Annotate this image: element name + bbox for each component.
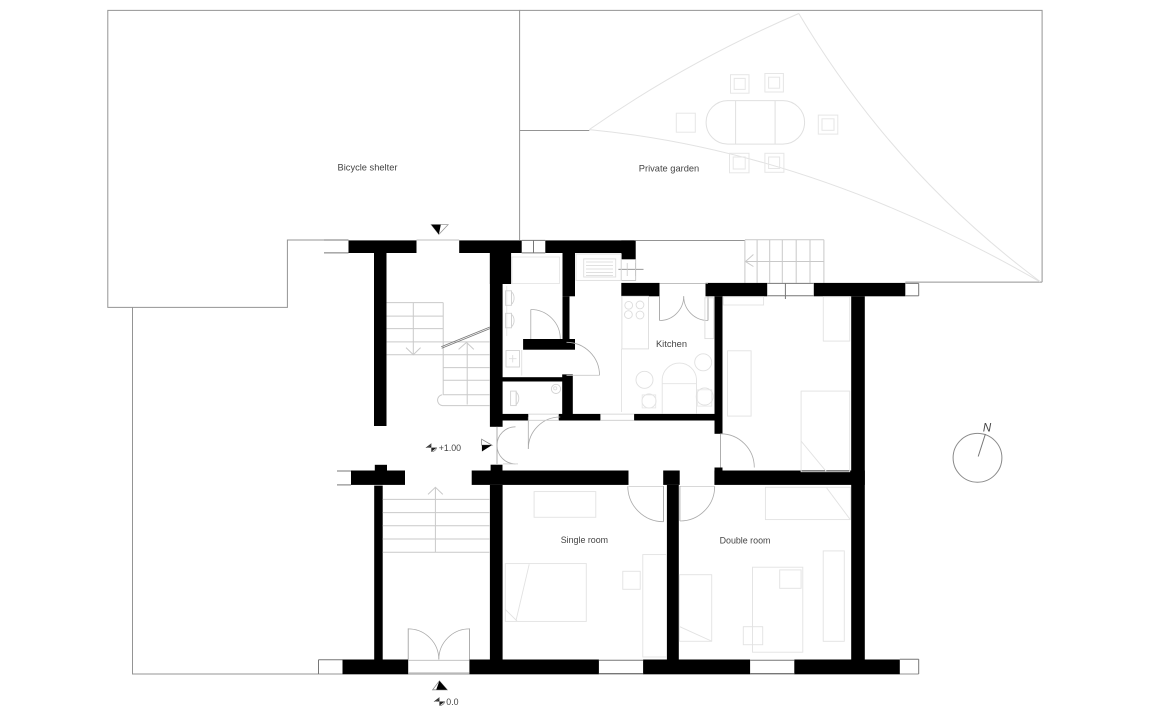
svg-text:Bicycle shelter: Bicycle shelter	[338, 163, 398, 173]
svg-text:Kitchen: Kitchen	[656, 339, 687, 349]
svg-text:+1.00: +1.00	[439, 443, 461, 453]
svg-text:Double room: Double room	[720, 535, 771, 545]
svg-text:0.0: 0.0	[446, 697, 458, 707]
svg-text:Single room: Single room	[561, 535, 608, 545]
svg-text:N: N	[983, 422, 992, 434]
svg-text:Private garden: Private garden	[639, 164, 699, 174]
